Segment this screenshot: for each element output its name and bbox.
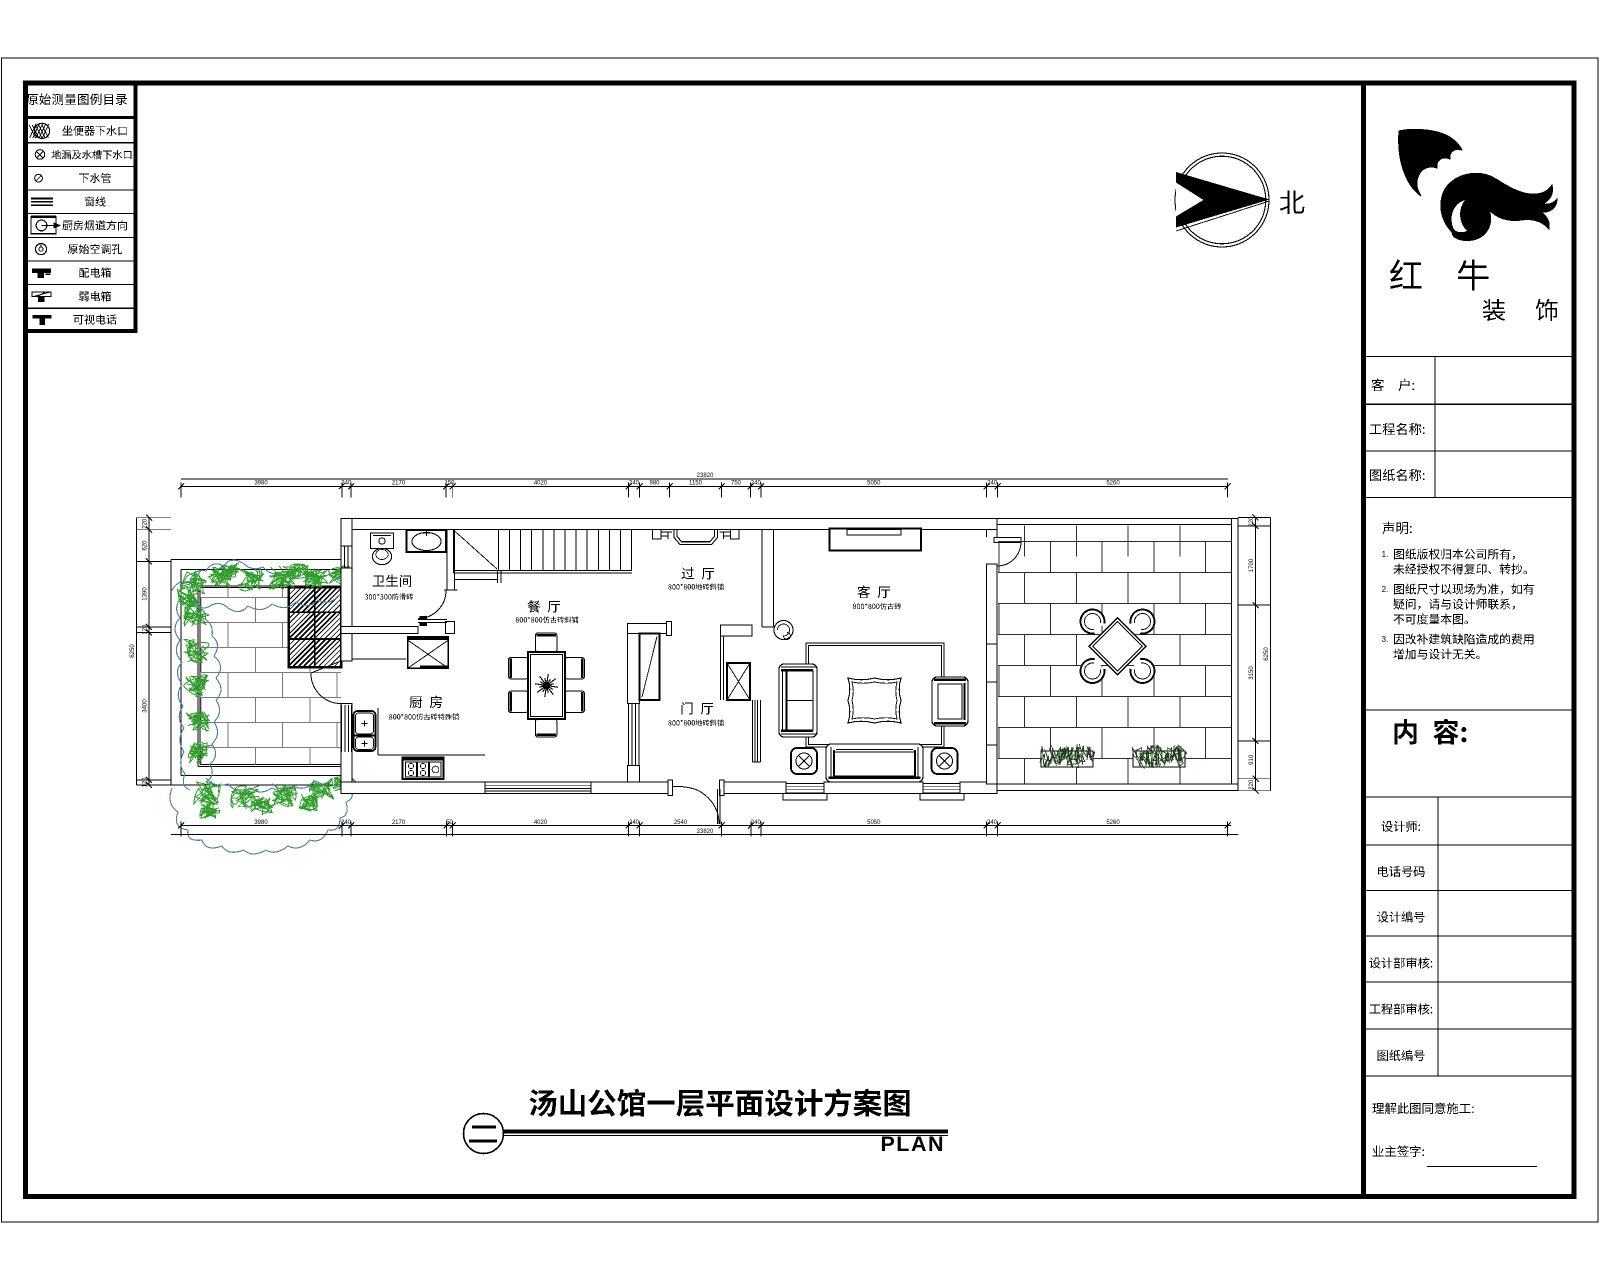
svg-text:750: 750: [731, 481, 742, 487]
svg-text:3.: 3.: [1382, 635, 1389, 644]
svg-text:240: 240: [751, 481, 762, 487]
svg-text:120: 120: [143, 777, 149, 788]
svg-text:6250: 6250: [130, 644, 136, 658]
svg-text:50: 50: [446, 820, 453, 826]
svg-text:980: 980: [649, 481, 660, 487]
svg-text:240: 240: [341, 481, 352, 487]
svg-text:220: 220: [143, 518, 149, 529]
svg-text:240: 240: [341, 820, 352, 826]
svg-text:620: 620: [143, 540, 149, 551]
svg-text:6250: 6250: [1264, 647, 1270, 661]
svg-text:5050: 5050: [867, 481, 881, 487]
svg-text:1.: 1.: [1382, 550, 1389, 559]
svg-text:2.: 2.: [1382, 585, 1389, 594]
svg-text:3980: 3980: [254, 820, 268, 826]
svg-text:1390: 1390: [143, 587, 149, 601]
svg-text:240: 240: [987, 481, 998, 487]
svg-text:220: 220: [1249, 516, 1255, 527]
svg-text:240: 240: [987, 820, 998, 826]
svg-text:3980: 3980: [254, 481, 268, 487]
svg-text:2170: 2170: [392, 820, 406, 826]
svg-text:910: 910: [1249, 754, 1255, 765]
svg-text:2540: 2540: [674, 820, 688, 826]
svg-text:5260: 5260: [1106, 481, 1120, 487]
svg-text:2170: 2170: [392, 481, 406, 487]
svg-text:3400: 3400: [143, 699, 149, 713]
svg-text:240: 240: [629, 481, 640, 487]
svg-text:240: 240: [751, 820, 762, 826]
svg-text:23820: 23820: [697, 473, 714, 479]
svg-text:240: 240: [629, 820, 640, 826]
svg-text:1150: 1150: [689, 481, 703, 487]
svg-text:5260: 5260: [1106, 820, 1120, 826]
svg-text:23820: 23820: [697, 829, 714, 835]
svg-text:3150: 3150: [1249, 666, 1255, 680]
svg-text:4020: 4020: [534, 481, 548, 487]
svg-text:5050: 5050: [867, 820, 881, 826]
svg-text:120: 120: [143, 624, 149, 635]
svg-text:4020: 4020: [534, 820, 548, 826]
svg-text:150: 150: [444, 481, 455, 487]
svg-text:1700: 1700: [1249, 558, 1255, 572]
svg-text:PLAN: PLAN: [880, 1132, 945, 1156]
svg-text:220: 220: [1249, 779, 1255, 790]
